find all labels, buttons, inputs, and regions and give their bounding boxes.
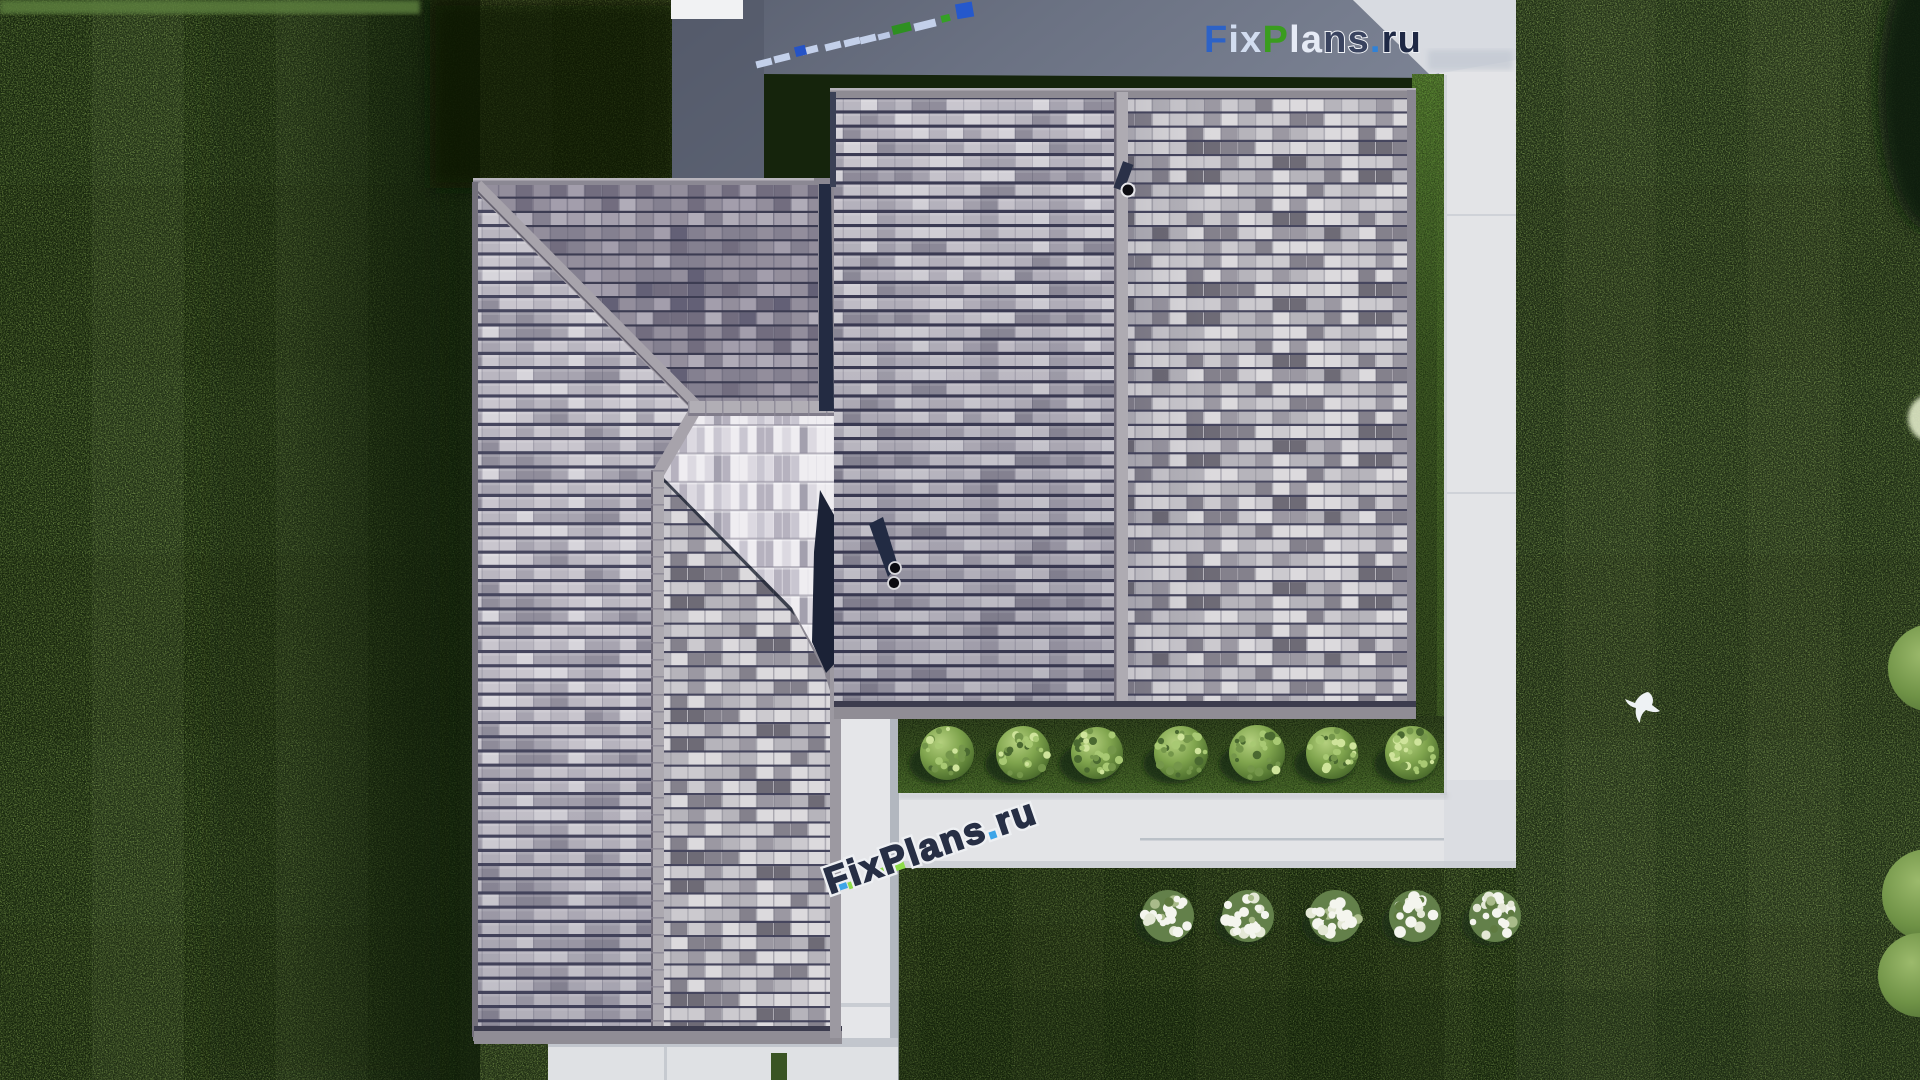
- svg-text:FixPlans.ru: FixPlans.ru: [1204, 19, 1422, 61]
